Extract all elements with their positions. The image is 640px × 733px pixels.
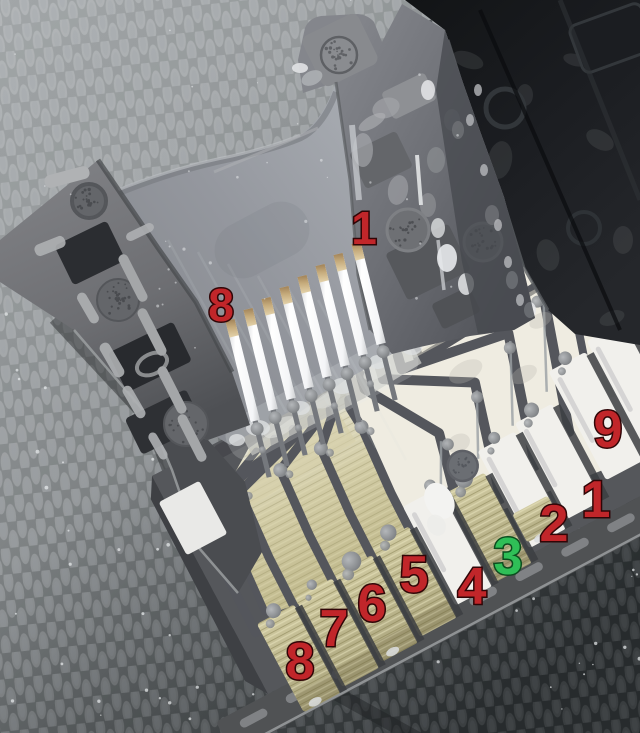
svg-text:9: 9 [594, 401, 623, 459]
svg-text:6: 6 [358, 575, 387, 633]
svg-text:4: 4 [458, 558, 487, 616]
svg-text:8: 8 [208, 279, 234, 331]
svg-text:1: 1 [351, 202, 377, 254]
svg-text:8: 8 [286, 633, 315, 691]
svg-text:2: 2 [540, 495, 569, 553]
svg-text:3: 3 [494, 528, 523, 586]
svg-text:1: 1 [582, 471, 611, 529]
svg-text:5: 5 [400, 546, 429, 604]
svg-text:7: 7 [320, 600, 349, 658]
